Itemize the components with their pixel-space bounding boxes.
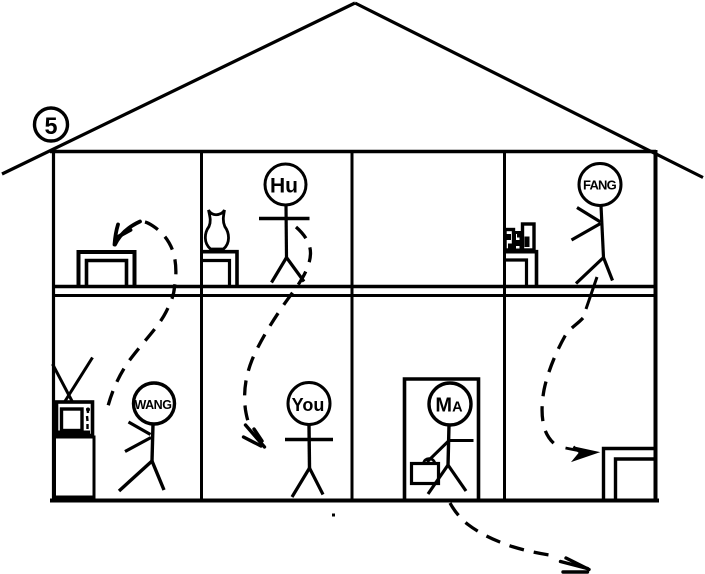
svg-text:Hu: Hu <box>270 175 298 198</box>
svg-text:WANG: WANG <box>135 398 172 412</box>
svg-text:5: 5 <box>45 113 58 140</box>
svg-text:You: You <box>292 395 325 415</box>
svg-text:FANG: FANG <box>583 178 617 193</box>
